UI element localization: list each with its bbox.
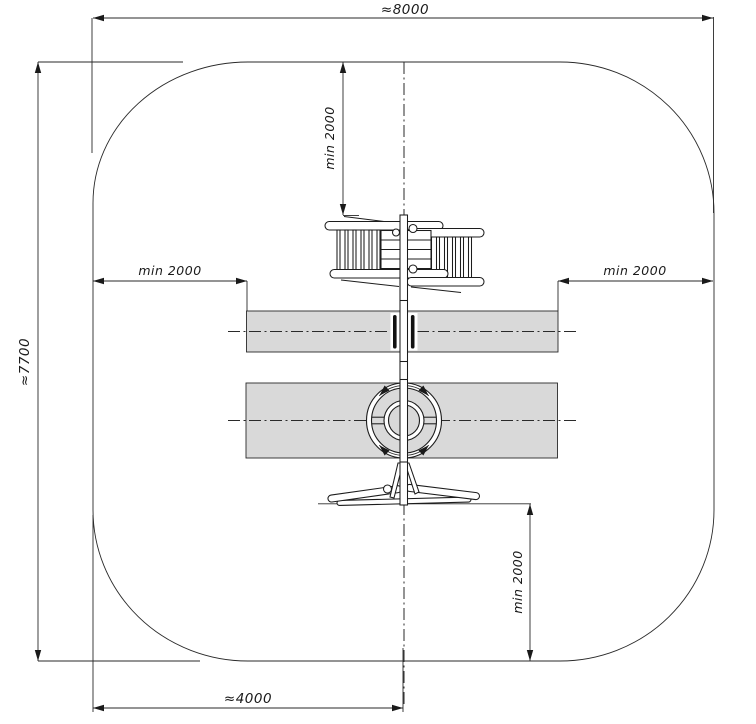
dimension-half-width: ≈4000 — [93, 515, 403, 712]
dimension-overall-width: ≈8000 — [92, 2, 714, 213]
dimension-label-overall-height: ≈7700 — [17, 338, 33, 386]
dimension-arrow — [702, 15, 713, 21]
dimension-arrow — [35, 650, 41, 661]
dimension-arrow — [392, 705, 403, 711]
dimension-clearance-top: min 2000 — [322, 62, 359, 216]
technical-drawing: ≈8000 ≈7700 min 2000 min 2000 min 2000 — [0, 0, 756, 724]
frame-pivot — [409, 225, 417, 233]
dimension-arrow — [702, 278, 713, 284]
dimension-arrow — [340, 204, 346, 215]
drawing-canvas: ≈8000 ≈7700 min 2000 min 2000 min 2000 — [0, 0, 756, 724]
frame-rail — [407, 278, 484, 287]
dimension-arrow — [340, 62, 346, 73]
dimension-arrow — [93, 15, 104, 21]
dimension-arrow — [35, 62, 41, 73]
dimension-label-clearance-bottom: min 2000 — [510, 550, 525, 613]
dimension-clearance-bottom: min 2000 — [510, 504, 533, 661]
leg-pivot — [384, 485, 392, 493]
dimension-arrow — [527, 504, 533, 515]
dimension-label-overall-width: ≈8000 — [381, 2, 429, 18]
dimension-label-clearance-right: min 2000 — [603, 263, 666, 278]
dimension-arrow — [236, 278, 247, 284]
dimension-clearance-right: min 2000 — [558, 263, 713, 311]
dimension-arrow — [558, 278, 569, 284]
frame-brace — [341, 280, 399, 287]
dimension-label-half-width: ≈4000 — [224, 691, 272, 707]
seat-bracket-right — [411, 315, 415, 349]
frame-rail — [330, 270, 448, 279]
swing-crossbeam — [400, 215, 408, 505]
frame-brace — [411, 287, 461, 293]
frame-pivot — [393, 229, 400, 236]
dimension-arrow — [93, 278, 104, 284]
dimension-clearance-left: min 2000 — [93, 263, 247, 311]
dimension-label-clearance-top: min 2000 — [322, 106, 337, 169]
frame-pivot — [409, 265, 417, 273]
ladder-rungs-left — [337, 230, 380, 270]
dimension-label-clearance-left: min 2000 — [138, 263, 201, 278]
dimension-arrow — [93, 705, 104, 711]
seat-bracket-left — [393, 315, 397, 349]
dimension-overall-height: ≈7700 — [17, 62, 200, 661]
dimension-arrow — [527, 650, 533, 661]
